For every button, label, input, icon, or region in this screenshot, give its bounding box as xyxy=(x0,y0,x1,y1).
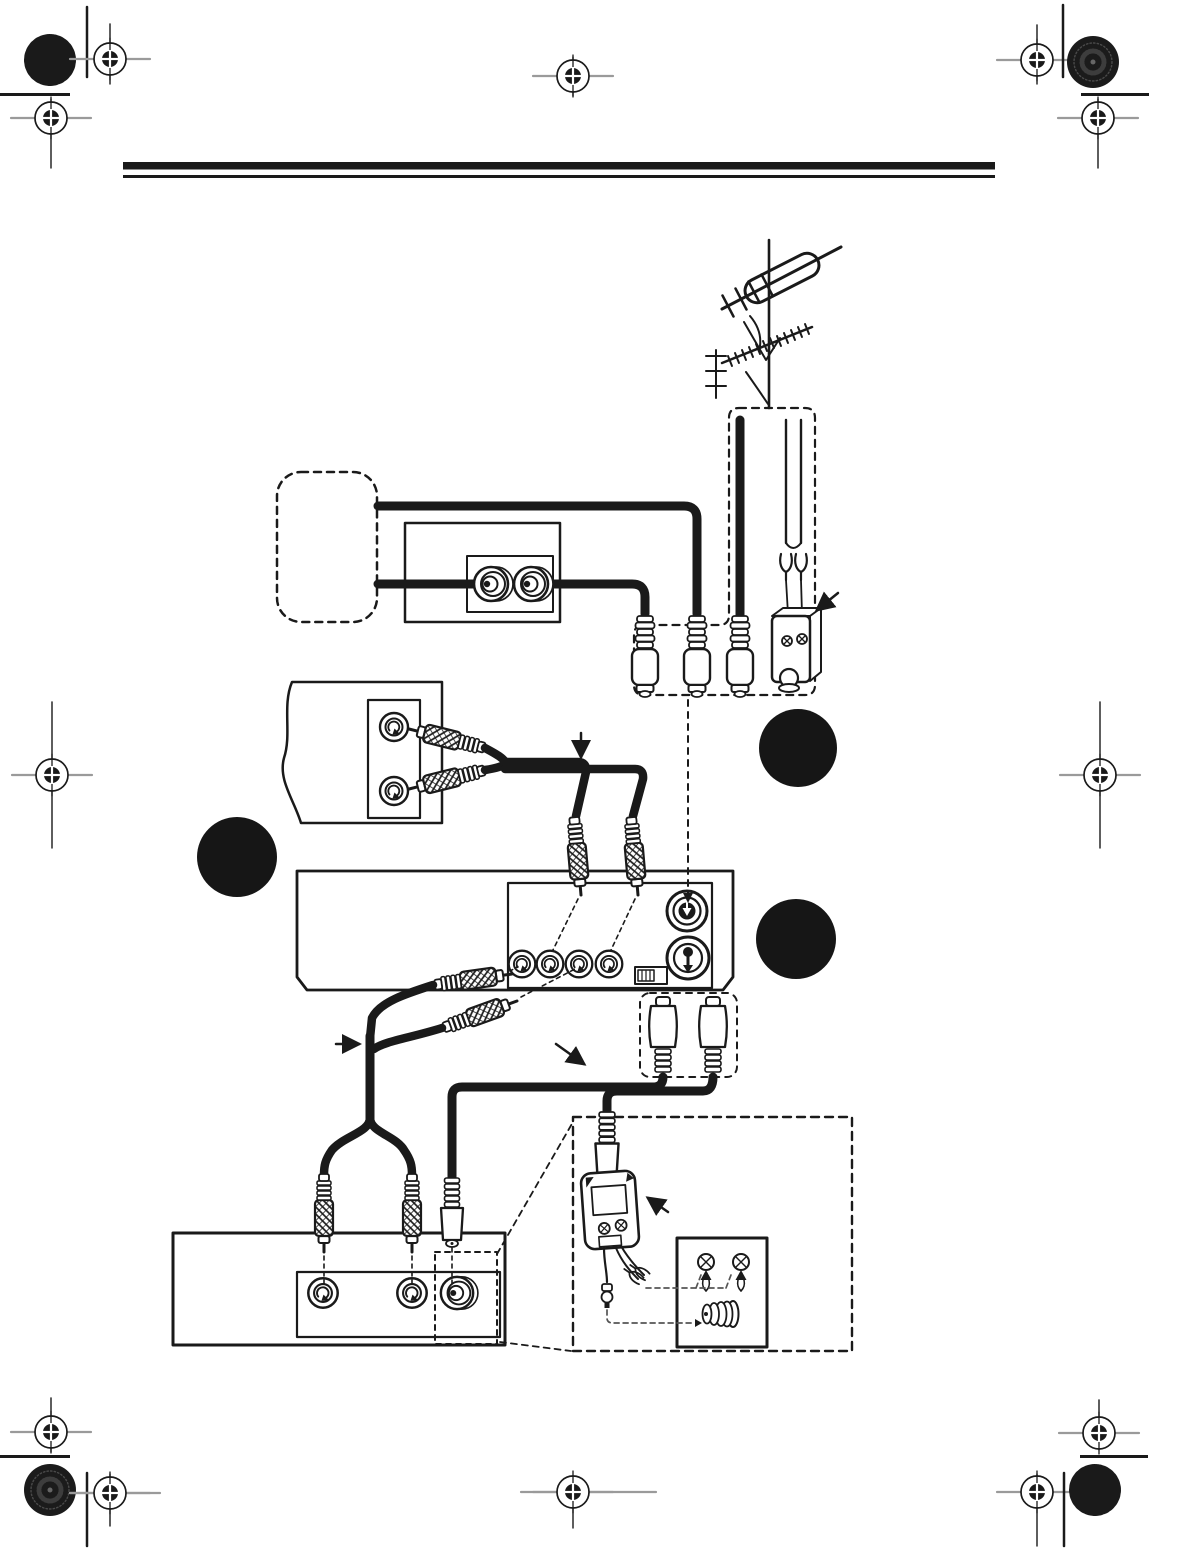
av-cable xyxy=(324,1118,370,1175)
mini-plug xyxy=(602,1284,613,1308)
wall-plate-coax-jack xyxy=(514,567,553,601)
balun-pointer-arrow xyxy=(648,1198,668,1212)
registration-target xyxy=(70,38,150,80)
vcr-rca-jack xyxy=(537,951,564,978)
push-on-plug xyxy=(649,997,677,1072)
registration-target xyxy=(11,1411,91,1453)
short-rule xyxy=(1080,1455,1148,1458)
detail-terminal-box xyxy=(607,1238,767,1347)
registration-target xyxy=(11,97,91,139)
registration-target xyxy=(533,1471,613,1513)
registration-target xyxy=(997,39,1077,81)
registration-target xyxy=(12,754,92,796)
registration-target xyxy=(1060,754,1140,796)
wall-plate-coax-jack xyxy=(474,567,513,601)
av-cable xyxy=(374,1028,442,1049)
manual-page xyxy=(0,0,1187,1568)
tv-antenna-f-jack xyxy=(441,1277,478,1309)
spade-lug xyxy=(780,554,792,580)
hookup-diagram xyxy=(173,240,852,1351)
tv-rca-jack xyxy=(308,1278,337,1307)
tv-back-panel xyxy=(173,1233,505,1345)
twin-lead-downlead xyxy=(780,420,807,614)
detail-matching-transformer xyxy=(580,1112,668,1308)
vcr-rca-jack xyxy=(596,951,623,978)
header-double-rule xyxy=(123,162,995,178)
detail-leader xyxy=(500,1342,571,1351)
starburst-mark xyxy=(37,47,63,73)
rca-output-jack xyxy=(380,777,408,805)
halftone-dot-mark xyxy=(1067,36,1119,88)
registration-target xyxy=(70,1472,150,1514)
screw-terminal xyxy=(733,1254,749,1270)
registration-target xyxy=(1059,1412,1139,1454)
rca-plug xyxy=(441,993,520,1037)
f-plug xyxy=(632,616,658,697)
f-plug xyxy=(727,616,753,697)
rca-plug xyxy=(315,1174,333,1252)
outdoor-antenna xyxy=(706,240,841,408)
push-on-plug xyxy=(699,997,727,1072)
f-plug xyxy=(684,616,710,697)
av-cable xyxy=(370,1118,412,1175)
screw-terminal xyxy=(782,636,792,646)
starburst-mark xyxy=(1082,1477,1108,1503)
step-callout-2 xyxy=(197,817,277,897)
balun-pointer-arrow xyxy=(817,593,838,610)
vcr-back-panel xyxy=(297,871,733,990)
vcr-rca-jack xyxy=(566,951,593,978)
av-source-device xyxy=(283,682,442,823)
short-rule xyxy=(0,93,70,96)
registration-target xyxy=(533,55,613,97)
screw-terminal xyxy=(797,634,807,644)
cable-pointer-arrow xyxy=(556,1044,584,1064)
rca-plug xyxy=(403,1174,421,1252)
push-on-plug xyxy=(441,1178,463,1247)
step-callout-1 xyxy=(759,709,837,787)
spade-lug xyxy=(795,554,807,580)
short-rule xyxy=(1081,93,1149,96)
detail-leader xyxy=(497,1122,573,1254)
ch3-ch4-switch xyxy=(635,967,667,984)
registration-target xyxy=(1058,97,1138,139)
dashed-tv-outline xyxy=(277,472,377,622)
short-rule xyxy=(0,1455,70,1458)
screw-terminal xyxy=(698,1254,714,1270)
rca-output-jack xyxy=(380,713,408,741)
f-connector-barrel xyxy=(703,1301,739,1327)
out-to-tv-jack xyxy=(667,937,709,979)
step-callout-3 xyxy=(756,899,836,979)
halftone-dot-mark xyxy=(24,1464,76,1516)
